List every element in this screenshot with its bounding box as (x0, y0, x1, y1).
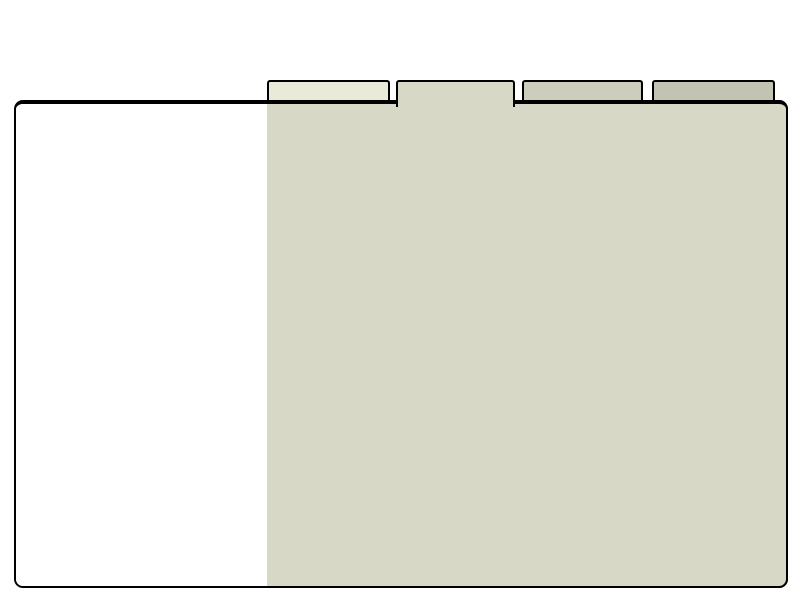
tab-2-label (398, 82, 513, 107)
tab-1[interactable] (267, 80, 390, 101)
tab-3-label (524, 82, 641, 101)
tab-2[interactable] (396, 80, 515, 107)
tab-4[interactable] (652, 80, 775, 101)
notebook-page-panel (267, 100, 788, 588)
desktop-background (0, 0, 800, 600)
tab-1-label (269, 82, 388, 101)
tab-4-label (654, 82, 773, 101)
left-content-pane (16, 104, 269, 586)
tab-3[interactable] (522, 80, 643, 101)
